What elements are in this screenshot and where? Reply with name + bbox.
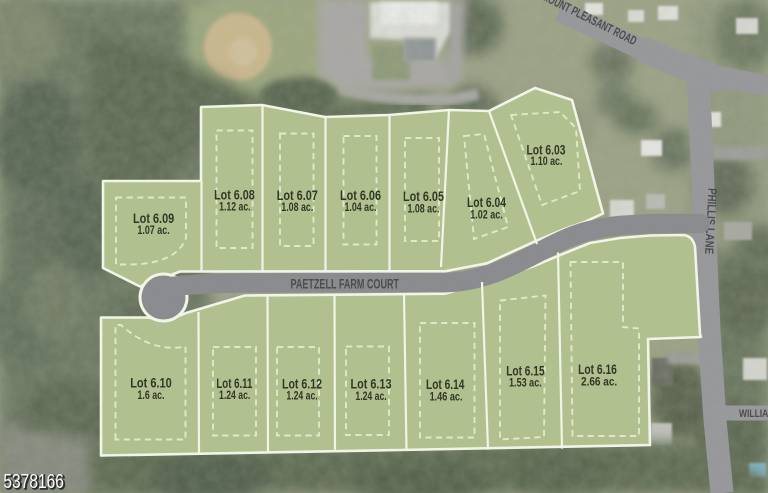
svg-text:5378166: 5378166 [3,470,64,493]
